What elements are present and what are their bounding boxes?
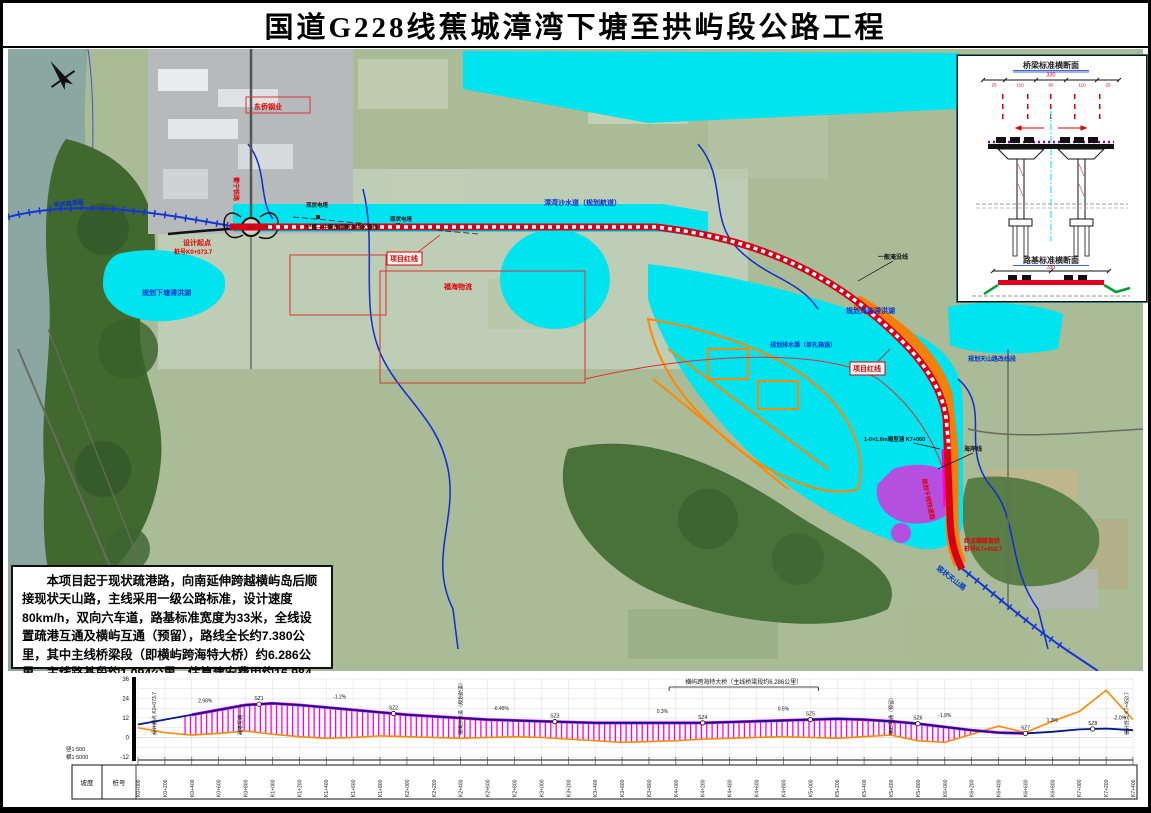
station-label: K6+000 — [943, 779, 949, 797]
sz-label: SZ5 — [806, 712, 815, 718]
svg-text:终点顺接现状: 终点顺接现状 — [963, 537, 1001, 545]
svg-text:设计起点: 设计起点 — [183, 238, 211, 247]
station-label: K6+800 — [1050, 779, 1056, 797]
map-label: 桩号K0+073.7 — [174, 248, 213, 256]
dim: 60 — [1048, 83, 1054, 88]
station-label: K2+400 — [459, 779, 465, 797]
sz-label: SZ3 — [550, 714, 559, 720]
station-label: K2+000 — [405, 779, 411, 797]
svg-text:衢宁铁路: 衢宁铁路 — [232, 177, 240, 202]
station-label: K4+400 — [728, 779, 734, 797]
sheet-title: 国道G228线蕉城漳湾下塘至拱屿段公路工程 — [264, 4, 886, 46]
station-label: K5+400 — [862, 779, 868, 797]
station-label: K3+800 — [647, 779, 653, 797]
elevation-axis — [132, 677, 136, 761]
grade-change-point — [916, 721, 920, 725]
map-label: 现状电塔 — [306, 201, 329, 209]
svg-text:海岸线: 海岸线 — [964, 445, 982, 453]
station-label: K3+200 — [566, 779, 572, 797]
purple-zone-2 — [891, 523, 911, 543]
map-label: 现状电塔 — [390, 215, 413, 223]
profile-annotation: 横屿互通（预留） — [888, 695, 895, 735]
grade-change-point — [257, 702, 261, 706]
dim: 110 — [1078, 83, 1086, 88]
drawing-sheet: 国道G228线蕉城漳湾下塘至拱屿段公路工程 — [0, 0, 1151, 813]
bridge-section-title: 桥梁标准横断面 — [1023, 60, 1079, 70]
station-label: K3+400 — [593, 779, 599, 797]
svg-text:福海物流: 福海物流 — [443, 282, 472, 291]
dim: 25 — [1105, 83, 1111, 88]
station-label: K0+800 — [244, 779, 250, 797]
inset-svg: 桥梁标准横断面 330 25 110 60 110 25 — [958, 56, 1144, 299]
station-label: K4+600 — [755, 779, 761, 797]
station-label: K2+600 — [486, 779, 492, 797]
profile-annotation: 漳湾沙水道（规划航道） — [458, 680, 465, 735]
dim: 110 — [1016, 83, 1024, 88]
title-bar: 国道G228线蕉城漳湾下塘至拱屿段公路工程 — [3, 3, 1148, 48]
bridge-deck — [988, 144, 1114, 149]
sz-label: SZ1 — [254, 696, 263, 702]
y-tick: -12 — [120, 755, 129, 761]
map-label: 福海物流 — [443, 282, 472, 291]
box-girder-right — [1058, 149, 1104, 159]
profile-svg: 3624120-12竖1:500横1:5000坡度桩号K0+000K0+200K… — [8, 673, 1143, 805]
sz-label: SZ6 — [913, 716, 922, 722]
station-label: K4+200 — [701, 779, 707, 797]
roadbed-trucks — [1008, 275, 1087, 280]
station-label: K1+200 — [297, 779, 303, 797]
station-label: K1+600 — [351, 779, 357, 797]
station-label: K4+800 — [781, 779, 787, 797]
station-label: K1+800 — [378, 779, 384, 797]
map-label: 漳湾沙水道（规划航道） — [544, 198, 621, 207]
map-label: 规划下塘滞洪湖 — [142, 288, 191, 297]
slope-left — [984, 285, 998, 294]
dim: 25 — [991, 83, 997, 88]
slope-label: 1.3% — [1047, 718, 1059, 724]
station-label: K5+000 — [808, 779, 814, 797]
slope-label: -1.2% — [333, 695, 347, 701]
station-label: K0+600 — [217, 779, 223, 797]
svg-text:桩号K0+073.7: 桩号K0+073.7 — [174, 248, 213, 256]
station-label: K0+400 — [190, 779, 196, 797]
svg-text:项目红线: 项目红线 — [390, 254, 418, 263]
roadbed-bar — [998, 280, 1104, 285]
row-header: 坡度 — [81, 778, 95, 787]
scale-note: 竖1:500 — [66, 745, 85, 753]
map-label: 设计起点 — [183, 238, 211, 247]
y-tick: 0 — [126, 736, 130, 742]
map-label: 规划排水渠（单孔箱涵） — [770, 341, 836, 349]
slope-label: 0.3% — [657, 709, 669, 715]
station-label: K5+800 — [916, 779, 922, 797]
map-label: 规划天山路改线段 — [968, 355, 1016, 363]
svg-text:桩号K7+453.7: 桩号K7+453.7 — [964, 545, 1003, 553]
station-label: K1+000 — [270, 779, 276, 797]
svg-text:现状电塔: 现状电塔 — [306, 201, 329, 209]
slope-right — [1104, 285, 1130, 292]
map-label: 宁德—中铜东南铜业供水管线 — [306, 223, 378, 231]
roadbed-total-width: 330 — [1047, 265, 1056, 271]
station-strip — [72, 765, 1137, 799]
station-label: K4+000 — [674, 779, 680, 797]
map-label: 东侨钢业 — [254, 102, 282, 111]
slope-label: 0.5% — [778, 706, 790, 712]
inset-panel: 桥梁标准横断面 330 25 110 60 110 25 — [957, 55, 1147, 302]
station-label: K6+600 — [1023, 779, 1029, 797]
grade-change-point — [1023, 731, 1027, 735]
station-label: K1+400 — [324, 779, 330, 797]
station-label: K5+600 — [889, 779, 895, 797]
station-label: K2+800 — [512, 779, 518, 797]
profile-panel: 3624120-12竖1:500横1:5000坡度桩号K0+000K0+200K… — [8, 673, 1143, 805]
station-label: K0+000 — [136, 779, 142, 797]
svg-text:规划天山路改线段: 规划天山路改线段 — [968, 355, 1016, 363]
y-tick: 24 — [122, 697, 129, 703]
trucks — [996, 137, 1098, 143]
svg-text:东侨钢业: 东侨钢业 — [254, 102, 282, 111]
description-box: 本项目起于现状疏港路，向南延伸跨越横屿岛后顺接现状天山路，主线采用一级公路标准，… — [11, 565, 333, 669]
slope-label: -1.9% — [938, 713, 952, 719]
svg-text:一般淹没线: 一般淹没线 — [878, 253, 908, 261]
station-label: K6+400 — [997, 779, 1003, 797]
station-label: K3+000 — [539, 779, 545, 797]
roadbed-section-title: 路基标准横断面 — [1023, 255, 1079, 265]
grade-change-point — [391, 711, 395, 715]
svg-text:现状电塔: 现状电塔 — [390, 215, 413, 223]
sz-label: SZ4 — [698, 715, 707, 721]
slope-label: 2.98% — [198, 698, 213, 704]
row-header: 桩号 — [113, 778, 127, 787]
grade-change-point — [553, 719, 557, 723]
svg-text:项目红线: 项目红线 — [853, 364, 881, 373]
station-label: K7+400 — [1131, 779, 1137, 797]
svg-text:规划海屿滞洪湖: 规划海屿滞洪湖 — [846, 306, 895, 315]
grade-change-point — [1090, 727, 1094, 731]
grade-change-point — [701, 721, 705, 725]
map-label: 桩号K7+453.7 — [964, 545, 1003, 553]
bridge-total-width: 330 — [1046, 73, 1055, 79]
profile-annotation: 疏港互通 — [237, 715, 244, 735]
station-label: K6+200 — [970, 779, 976, 797]
station-label: K0+200 — [163, 779, 169, 797]
svg-text:规划下塘滞洪湖: 规划下塘滞洪湖 — [142, 288, 191, 297]
map-label: 衢宁铁路 — [232, 177, 240, 202]
y-tick: 12 — [122, 716, 129, 722]
map-label: 终点顺接现状 — [963, 537, 1001, 545]
station-label: K7+200 — [1104, 779, 1110, 797]
svg-text:漳湾沙水道（规划航道）: 漳湾沙水道（规划航道） — [544, 198, 621, 207]
lake-center — [500, 229, 610, 329]
svg-text:宁德—中铜东南铜业供水管线: 宁德—中铜东南铜业供水管线 — [306, 223, 378, 231]
profile-annotation: 设计终点 K7+453.7 — [1123, 692, 1130, 735]
y-tick: 36 — [122, 677, 129, 683]
station-label: K2+200 — [432, 779, 438, 797]
bridge-bracket-label: 横屿跨海特大桥（主线桥梁段约6.286公里） — [685, 678, 802, 686]
sz-label: SZ8 — [1088, 721, 1097, 727]
scale-note: 横1:5000 — [66, 753, 88, 761]
slope-label: -0.45% — [493, 706, 509, 712]
station-label: K3+600 — [620, 779, 626, 797]
svg-text:规划排水渠（单孔箱涵）: 规划排水渠（单孔箱涵） — [770, 341, 836, 349]
grade-change-point — [808, 717, 812, 721]
box-girder-left — [998, 149, 1044, 159]
sz-label: SZ7 — [1021, 725, 1030, 731]
map-label: 规划海屿滞洪湖 — [846, 306, 895, 315]
profile-annotation: 设计起点 K0+073.7 — [151, 692, 158, 735]
station-label: K5+200 — [835, 779, 841, 797]
station-label: K7+000 — [1077, 779, 1083, 797]
svg-text:1-0×1.6m箱型涵 K7+060: 1-0×1.6m箱型涵 K7+060 — [864, 435, 925, 443]
sz-label: SZ2 — [389, 706, 398, 712]
water-east — [948, 303, 1063, 354]
